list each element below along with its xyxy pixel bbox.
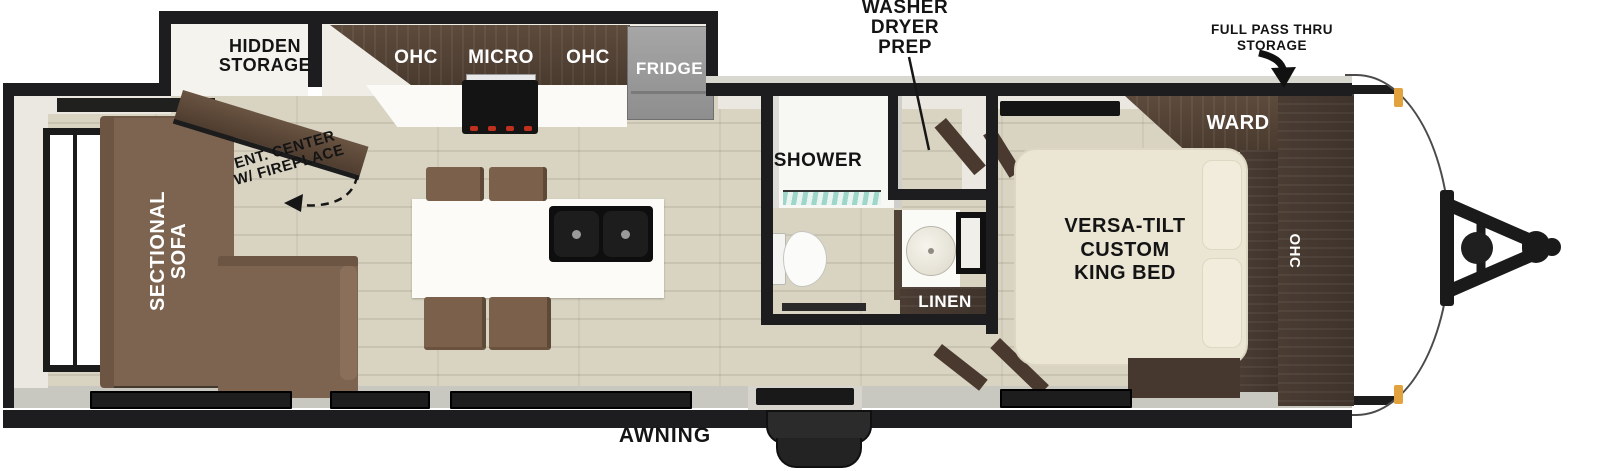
marker-light-bottom [1394,385,1403,404]
fridge-label: FRIDGE [627,60,712,78]
island-stool [489,297,551,350]
floorplan-canvas: WASHER DRYER PREP FULL PASS THRU STORAGE… [0,0,1600,471]
kitchen-bottom-window-1 [330,391,430,409]
bedroom-bottom-window [1000,389,1132,408]
sectional-sofa-seat [218,256,358,398]
bedroom-tv [1000,101,1120,116]
washer-dryer-prep-label: WASHER DRYER PREP [835,0,975,58]
ohc-front-label: OHC [1286,221,1302,281]
washer-closet-wall [888,96,898,200]
hidden-storage-label: HIDDEN STORAGE [195,37,335,75]
vanity-sink [906,226,956,276]
living-top-wall [3,83,171,96]
sink-drain [621,230,630,239]
fridge-door-line [631,91,709,94]
mirror-glass [961,218,980,268]
burner-knob [506,126,514,131]
entry-step-2 [776,438,862,468]
island-stool [424,297,486,350]
marker-light-top [1394,88,1403,107]
full-pass-thru-storage-label: FULL PASS THRU STORAGE [1202,22,1342,54]
entry-door-mat [756,388,854,405]
kitchen-bottom-window-2 [450,391,692,409]
left-wall [3,83,14,426]
slide-top-wall [159,11,718,24]
nightstand [1128,358,1240,398]
linen-label: LINEN [900,293,990,311]
stove [462,80,538,134]
shower-glass [783,192,881,205]
burner-knob [524,126,532,131]
king-bed-label: VERSA-TILT CUSTOM KING BED [1040,215,1210,286]
pass-thru-arrow [1259,53,1284,72]
roof-lip [706,76,1352,83]
sink-drain [572,230,581,239]
bath-left-wall [761,96,773,325]
island-stool [426,167,484,201]
sectional-sofa-armrest [340,266,357,380]
bath-shelf [782,303,866,311]
sectional-sofa-label: SECTIONAL SOFA [148,166,190,336]
sink-drain [928,248,934,254]
washer-closet-bottom-wall [888,189,998,200]
ohc-right-label: OHC [558,48,618,68]
burner-knob [488,126,496,131]
sink-basin-right [603,211,648,257]
rear-window [43,128,107,372]
main-top-wall [706,83,1352,96]
island-stool [489,167,547,201]
micro-label: MICRO [466,48,536,68]
island-sink [549,206,653,262]
burner-knob [470,126,478,131]
shower-label: SHOWER [768,151,868,171]
bath-bottom-wall [761,314,998,325]
hitch [1440,190,1561,306]
living-bottom-window [90,391,292,409]
ward-label: WARD [1188,113,1288,134]
front-cap [1345,74,1451,416]
awning-label: AWNING [605,425,725,447]
bath-mirror [956,212,986,274]
sink-basin-left [554,211,599,257]
ohc-left-label: OHC [386,48,446,68]
entry-door-opening [748,386,862,410]
